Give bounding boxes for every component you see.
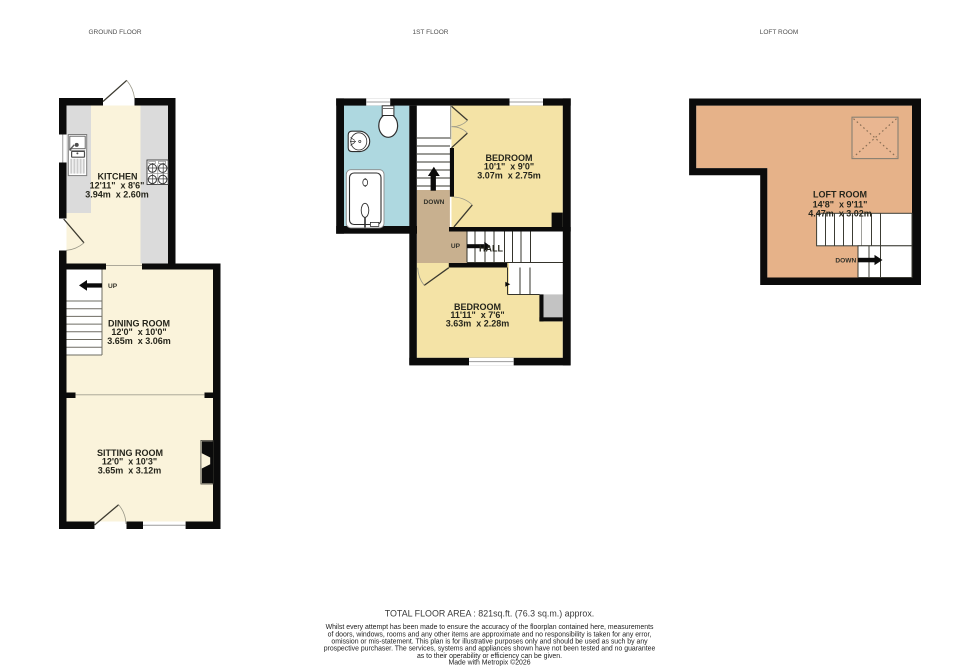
svg-text:of doors, windows, rooms and a: of doors, windows, rooms and any other i… xyxy=(328,631,652,638)
svg-text:omission or mis-statement. Thi: omission or mis-statement. This plan is … xyxy=(331,639,648,646)
svg-text:TOTAL FLOOR AREA : 821sq.ft. (: TOTAL FLOOR AREA : 821sq.ft. (76.3 sq.m.… xyxy=(385,609,594,619)
svg-text:prospective purchaser. The ser: prospective purchaser. The services, sys… xyxy=(324,646,656,653)
svg-text:3.07m x 2.75m: 3.07m x 2.75m xyxy=(477,171,541,181)
svg-text:DOWN: DOWN xyxy=(835,258,856,265)
svg-text:Made with Metropix ©2026: Made with Metropix ©2026 xyxy=(448,659,530,667)
svg-text:1ST FLOOR: 1ST FLOOR xyxy=(412,29,448,36)
svg-text:GROUND FLOOR: GROUND FLOOR xyxy=(88,29,141,36)
svg-text:DOWN: DOWN xyxy=(424,199,445,206)
svg-text:3.65m x 3.12m: 3.65m x 3.12m xyxy=(98,466,162,476)
svg-text:LOFT ROOM: LOFT ROOM xyxy=(813,190,867,200)
svg-text:4.47m x 3.02m: 4.47m x 3.02m xyxy=(808,209,872,219)
svg-text:3.63m x 2.28m: 3.63m x 2.28m xyxy=(446,319,510,329)
svg-text:UP: UP xyxy=(451,243,461,250)
svg-text:3.94m x 2.60m: 3.94m x 2.60m xyxy=(85,189,149,199)
svg-text:Whilst every attempt has been: Whilst every attempt has been made to en… xyxy=(326,624,654,631)
svg-text:LOFT ROOM: LOFT ROOM xyxy=(760,29,799,36)
svg-text:HALL: HALL xyxy=(479,244,503,254)
svg-text:UP: UP xyxy=(108,283,118,290)
svg-text:3.65m x 3.06m: 3.65m x 3.06m xyxy=(107,336,171,346)
